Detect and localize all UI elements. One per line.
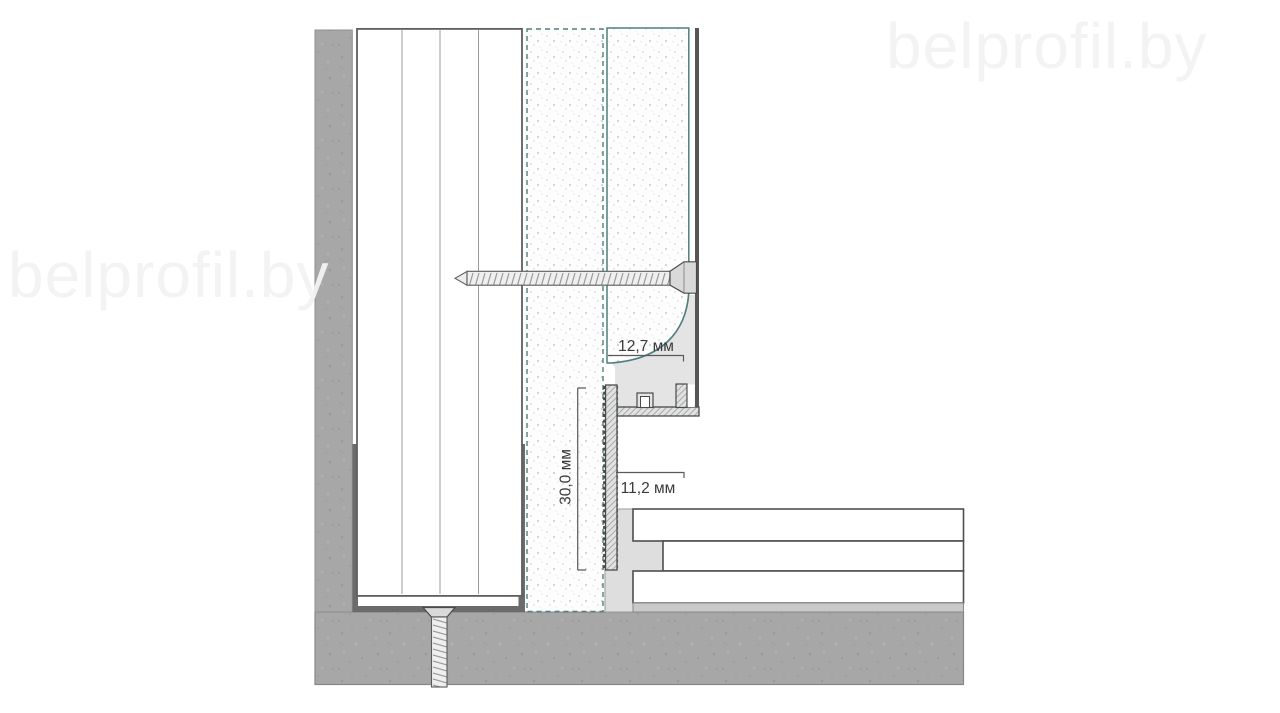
concrete-wall-column [315, 30, 352, 612]
perforated-flange [606, 385, 618, 570]
floor-panel-top [633, 509, 964, 541]
watermark-left: belprofil.by [8, 239, 330, 311]
wall-screw-shaft [467, 271, 670, 285]
profile-section-diagram: 12,7 мм 30,0 мм 11,2 мм belprofil.by bel… [0, 0, 1280, 713]
dimension-label-cove: 12,7 мм [618, 338, 674, 355]
plaster-layer-solid [607, 28, 689, 363]
floor-panel-bottom [633, 571, 964, 603]
profile-slot [688, 385, 695, 408]
profile-base-bar [615, 407, 699, 416]
profile-right-upstand [676, 384, 687, 408]
profile-back-wall [695, 28, 699, 416]
concrete-floor-slab [315, 612, 964, 685]
floor-underlay-strip [633, 603, 964, 612]
floor-panel-middle [663, 541, 964, 571]
plaster-layer-dashed [527, 29, 603, 612]
technical-drawing-page: 12,7 мм 30,0 мм 11,2 мм belprofil.by bel… [0, 0, 1280, 713]
watermark-top-right: belprofil.by [886, 10, 1208, 82]
led-clip-slot [641, 397, 650, 408]
dimension-label-flange: 30,0 мм [558, 449, 575, 505]
floor-screw-shaft [432, 617, 448, 687]
dimension-label-gap: 11,2 мм [621, 480, 676, 497]
